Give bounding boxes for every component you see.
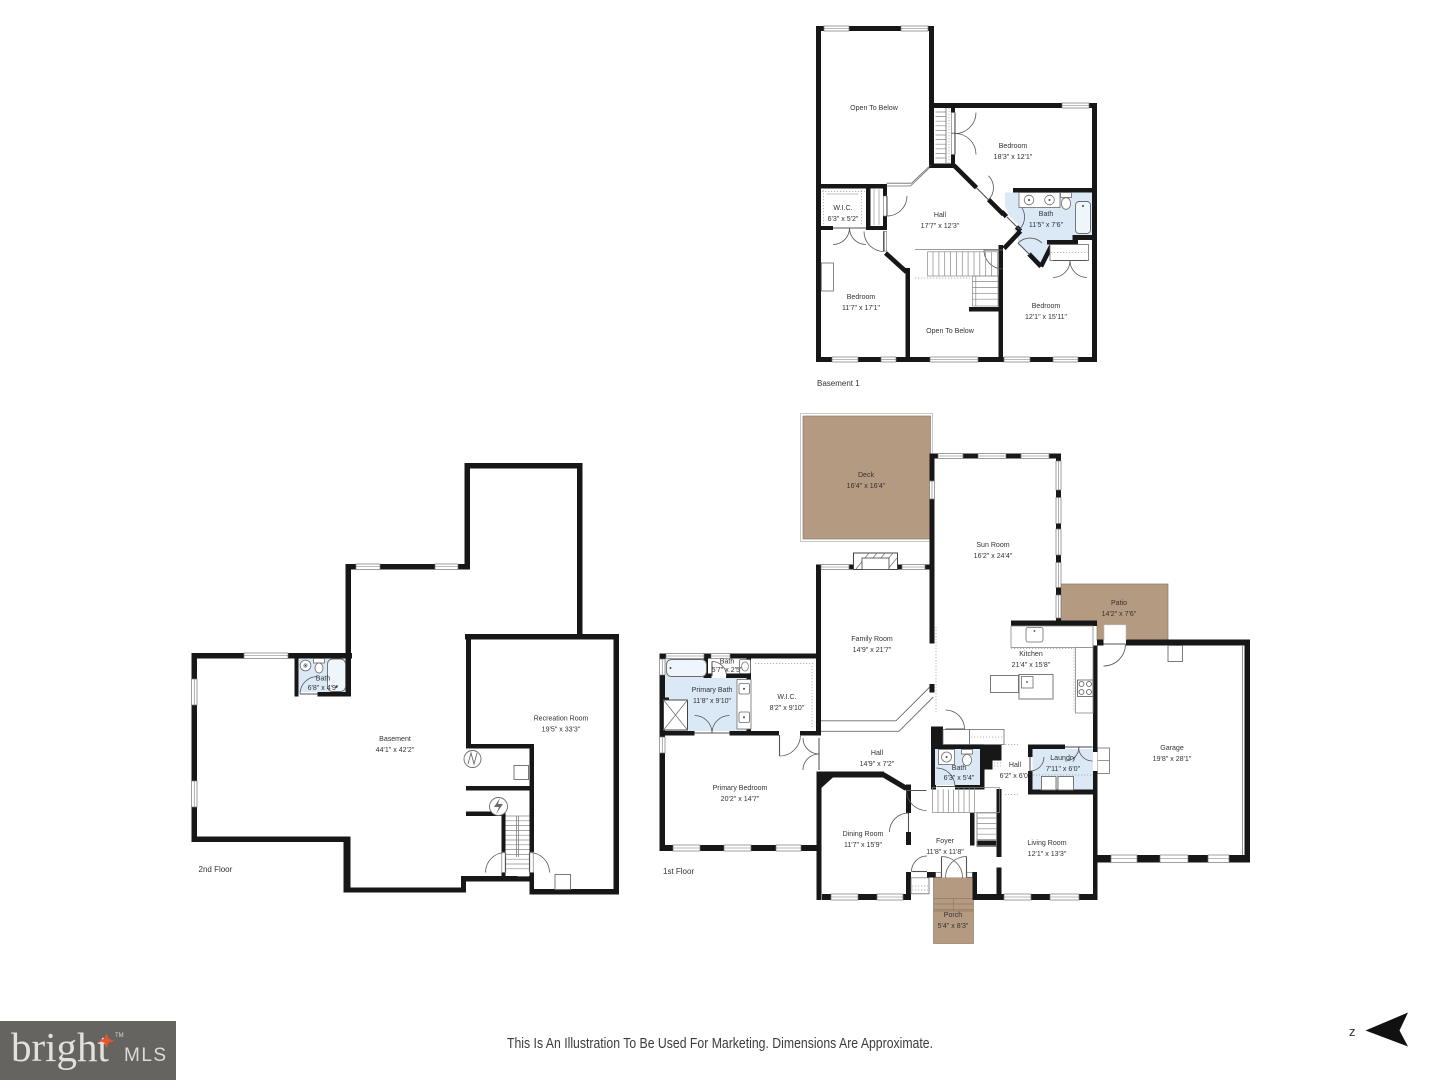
svg-text:Kitchen: Kitchen <box>1019 651 1043 658</box>
svg-text:14'2" x 7'6": 14'2" x 7'6" <box>1102 611 1137 618</box>
svg-text:Recreation Room: Recreation Room <box>534 716 589 723</box>
svg-text:W.I.C.: W.I.C. <box>777 694 796 701</box>
svg-text:6'2" x 6'0": 6'2" x 6'0" <box>1000 773 1031 780</box>
svg-text:Basement 1: Basement 1 <box>817 379 860 388</box>
svg-text:18'3" x 12'1": 18'3" x 12'1" <box>994 154 1033 161</box>
svg-text:bright: bright <box>11 1024 110 1070</box>
svg-text:11'7" x 15'9": 11'7" x 15'9" <box>844 842 883 849</box>
svg-text:Bath: Bath <box>316 676 331 683</box>
svg-text:This Is An Illustration To Be: This Is An Illustration To Be Used For M… <box>507 1036 933 1052</box>
svg-text:Primary Bedroom: Primary Bedroom <box>713 785 768 792</box>
svg-text:Patio: Patio <box>1111 600 1127 607</box>
svg-text:W.I.C.: W.I.C. <box>833 205 852 212</box>
svg-text:20'2" x 14'7": 20'2" x 14'7" <box>721 796 760 803</box>
svg-text:Porch: Porch <box>944 912 962 919</box>
svg-text:Laundry: Laundry <box>1050 755 1076 762</box>
svg-text:Deck: Deck <box>858 472 875 479</box>
svg-text:44'1" x 42'2": 44'1" x 42'2" <box>376 747 415 754</box>
svg-text:Bath: Bath <box>1039 211 1054 218</box>
svg-text:Family Room: Family Room <box>851 636 893 643</box>
svg-text:Bedroom: Bedroom <box>1032 303 1061 310</box>
svg-text:Hall: Hall <box>1009 762 1022 769</box>
svg-text:Bath: Bath <box>720 659 735 666</box>
svg-text:14'9" x 21'7": 14'9" x 21'7" <box>853 647 892 654</box>
svg-text:Primary Bath: Primary Bath <box>692 687 733 694</box>
svg-text:7'11" x 6'0": 7'11" x 6'0" <box>1046 766 1081 773</box>
svg-text:11'5" x 7'6": 11'5" x 7'6" <box>1029 222 1064 229</box>
svg-text:Foyer: Foyer <box>936 838 955 845</box>
svg-text:Dining Room: Dining Room <box>843 831 884 838</box>
svg-text:21'4" x 15'8": 21'4" x 15'8" <box>1012 662 1051 669</box>
svg-text:12'1" x 15'11": 12'1" x 15'11" <box>1025 314 1068 321</box>
svg-text:TM: TM <box>115 1033 124 1039</box>
svg-text:Living Room: Living Room <box>1027 840 1066 847</box>
svg-text:11'8" x 9'10": 11'8" x 9'10" <box>693 698 732 705</box>
svg-text:19'8" x 28'1": 19'8" x 28'1" <box>1153 756 1192 763</box>
svg-text:14'9" x 7'2": 14'9" x 7'2" <box>860 761 895 768</box>
svg-text:Garage: Garage <box>1160 745 1184 752</box>
svg-text:Basement: Basement <box>379 736 411 743</box>
svg-text:Hall: Hall <box>934 212 947 219</box>
svg-text:Sun Room: Sun Room <box>976 542 1009 549</box>
svg-text:Bedroom: Bedroom <box>847 294 876 301</box>
svg-text:8'2" x 9'10": 8'2" x 9'10" <box>770 705 805 712</box>
svg-text:19'5" x 33'3": 19'5" x 33'3" <box>542 727 581 734</box>
svg-text:6'8" x 4'9": 6'8" x 4'9" <box>308 685 339 692</box>
svg-text:16'2" x 24'4": 16'2" x 24'4" <box>974 553 1013 560</box>
svg-text:1st Floor: 1st Floor <box>663 867 694 876</box>
svg-text:6'3" x 5'4": 6'3" x 5'4" <box>944 775 975 782</box>
svg-text:MLS: MLS <box>124 1045 168 1066</box>
svg-text:Bath: Bath <box>952 765 967 772</box>
svg-text:16'4" x 16'4": 16'4" x 16'4" <box>847 483 886 490</box>
svg-text:5'7" x 2'5": 5'7" x 2'5" <box>712 667 743 674</box>
svg-text:2nd Floor: 2nd Floor <box>199 865 233 874</box>
svg-text:5'4" x 8'3": 5'4" x 8'3" <box>938 923 969 930</box>
svg-text:11'7" x 17'1": 11'7" x 17'1" <box>842 305 881 312</box>
svg-text:Hall: Hall <box>871 750 884 757</box>
svg-text:z: z <box>1349 1024 1356 1039</box>
svg-text:11'8" x 11'8": 11'8" x 11'8" <box>926 849 964 856</box>
svg-text:12'1" x 13'3": 12'1" x 13'3" <box>1028 851 1067 858</box>
svg-text:17'7" x 12'3": 17'7" x 12'3" <box>921 223 960 230</box>
svg-text:Open To Below: Open To Below <box>926 328 975 335</box>
svg-text:Open To Below: Open To Below <box>850 105 899 112</box>
svg-text:Bedroom: Bedroom <box>999 143 1028 150</box>
svg-text:6'3" x 5'2": 6'3" x 5'2" <box>828 216 859 223</box>
